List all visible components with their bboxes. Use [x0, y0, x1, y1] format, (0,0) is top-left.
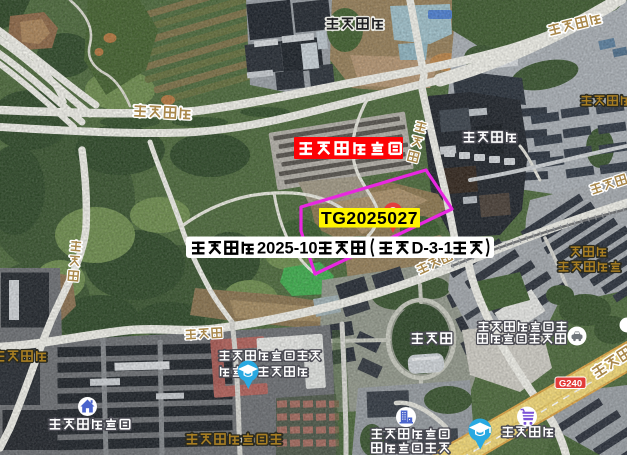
svg-text:G240: G240	[559, 379, 582, 390]
svg-text:D-3-1: D-3-1	[412, 240, 453, 258]
svg-text:TG2025027: TG2025027	[321, 208, 418, 228]
svg-text:2025-10: 2025-10	[257, 240, 318, 258]
